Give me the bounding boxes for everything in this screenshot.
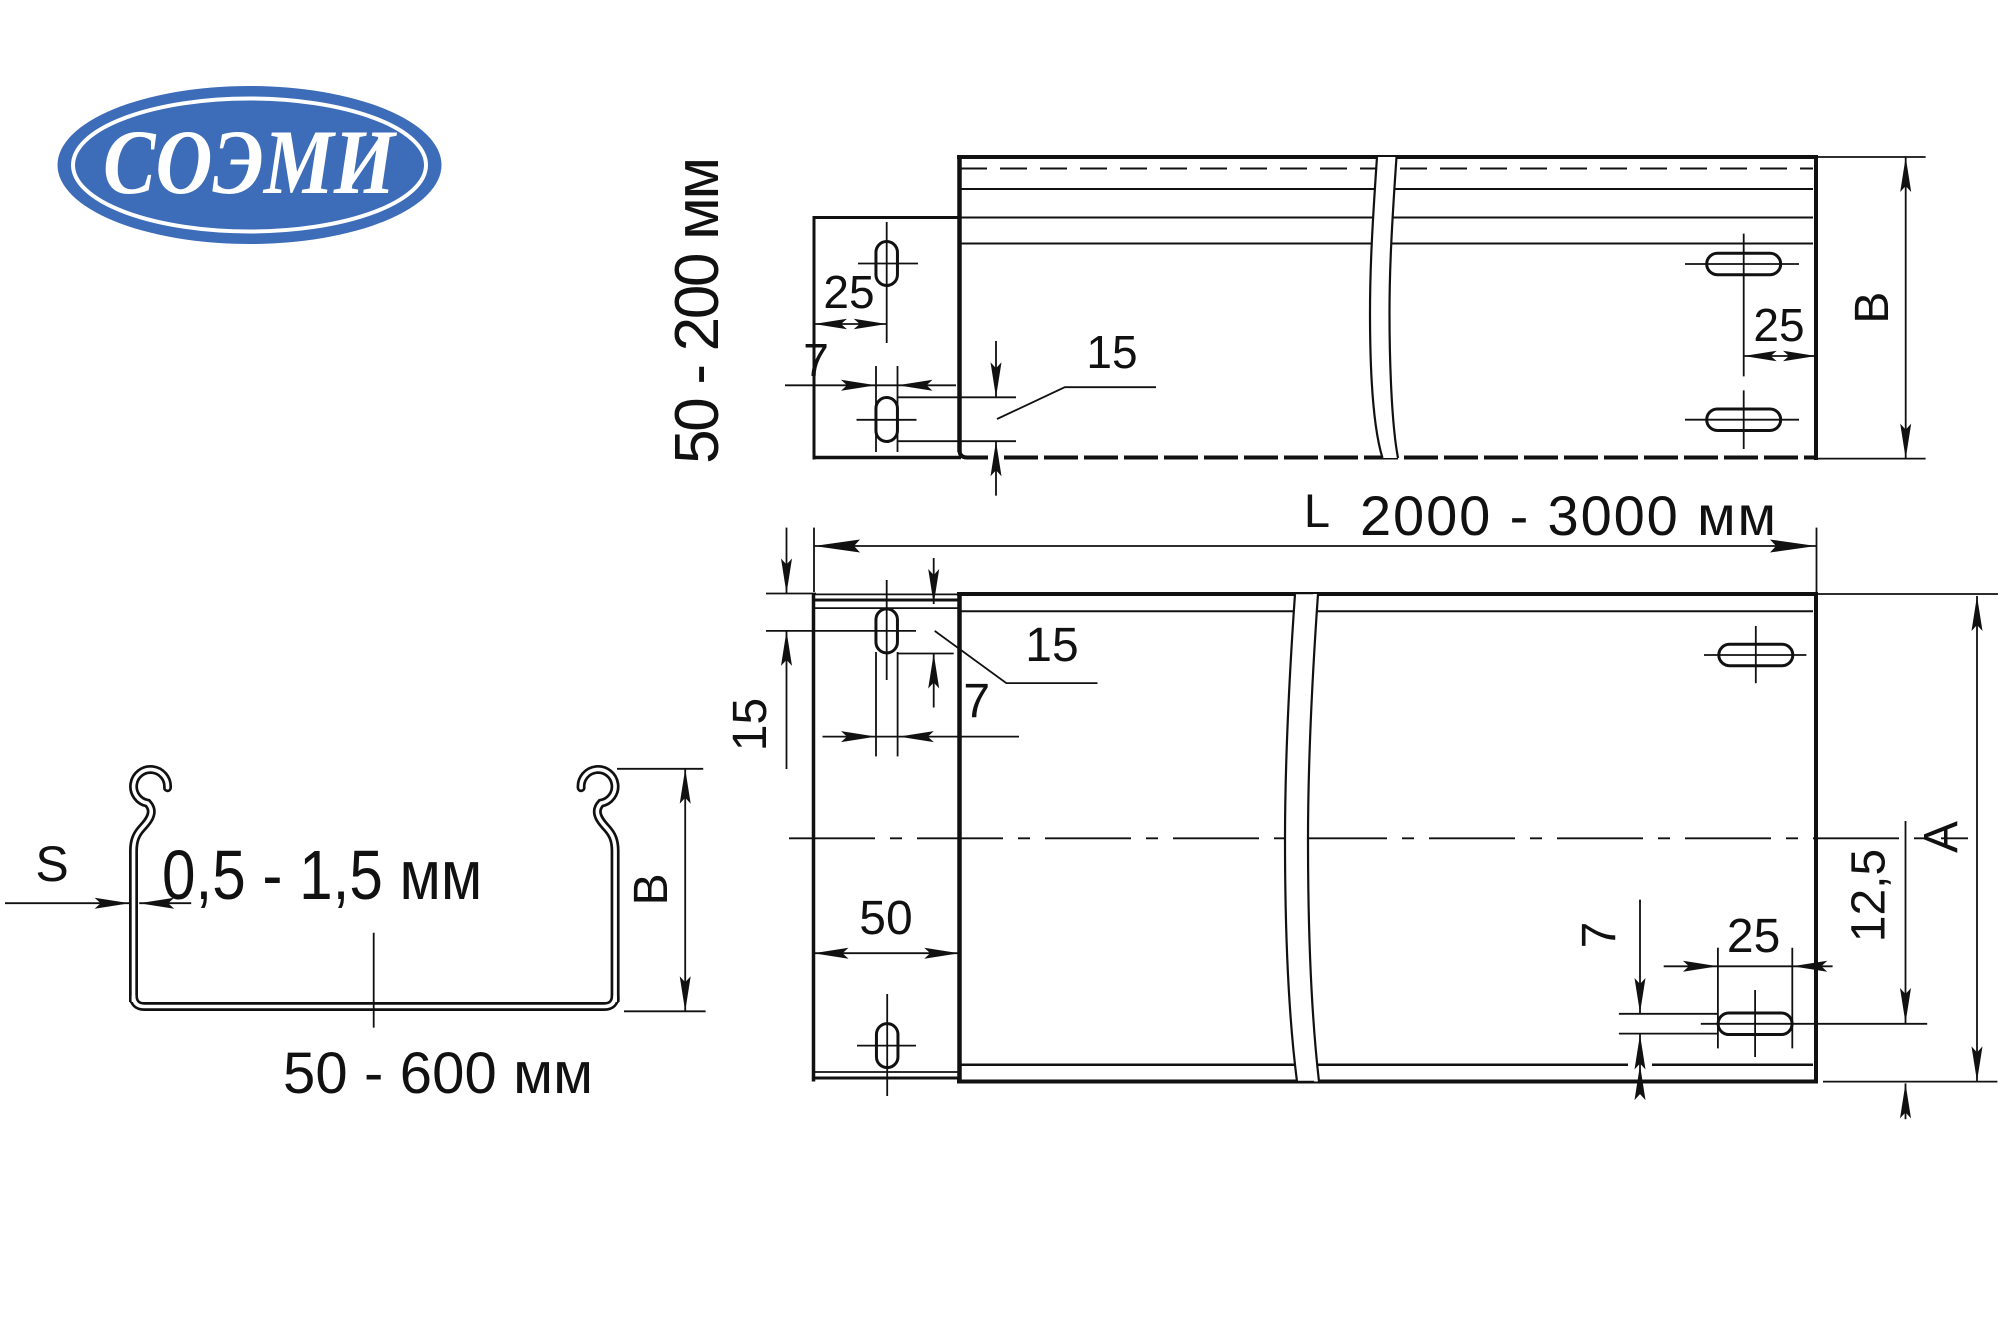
svg-text:7: 7: [963, 675, 990, 728]
svg-text:2000 - 3000 мм: 2000 - 3000 мм: [1360, 484, 1776, 547]
svg-text:S: S: [35, 836, 68, 892]
svg-text:СОЭМИ: СОЭМИ: [103, 111, 397, 213]
svg-text:12,5: 12,5: [1843, 849, 1896, 942]
svg-text:25: 25: [1753, 299, 1804, 351]
svg-text:50: 50: [859, 892, 912, 945]
svg-text:0,5 - 1,5 мм: 0,5 - 1,5 мм: [162, 836, 482, 914]
svg-text:15: 15: [1025, 619, 1078, 672]
svg-text:15: 15: [724, 698, 777, 751]
svg-text:L: L: [1304, 484, 1330, 537]
svg-text:B: B: [1846, 292, 1899, 324]
svg-text:50 - 600 мм: 50 - 600 мм: [283, 1041, 593, 1106]
svg-text:B: B: [625, 873, 678, 905]
svg-text:25: 25: [1727, 910, 1780, 963]
svg-text:7: 7: [803, 334, 829, 386]
svg-text:15: 15: [1086, 326, 1137, 378]
svg-text:50 - 200 мм: 50 - 200 мм: [663, 157, 732, 464]
svg-text:A: A: [1915, 821, 1968, 853]
svg-text:25: 25: [823, 266, 874, 318]
svg-text:7: 7: [1573, 922, 1626, 949]
